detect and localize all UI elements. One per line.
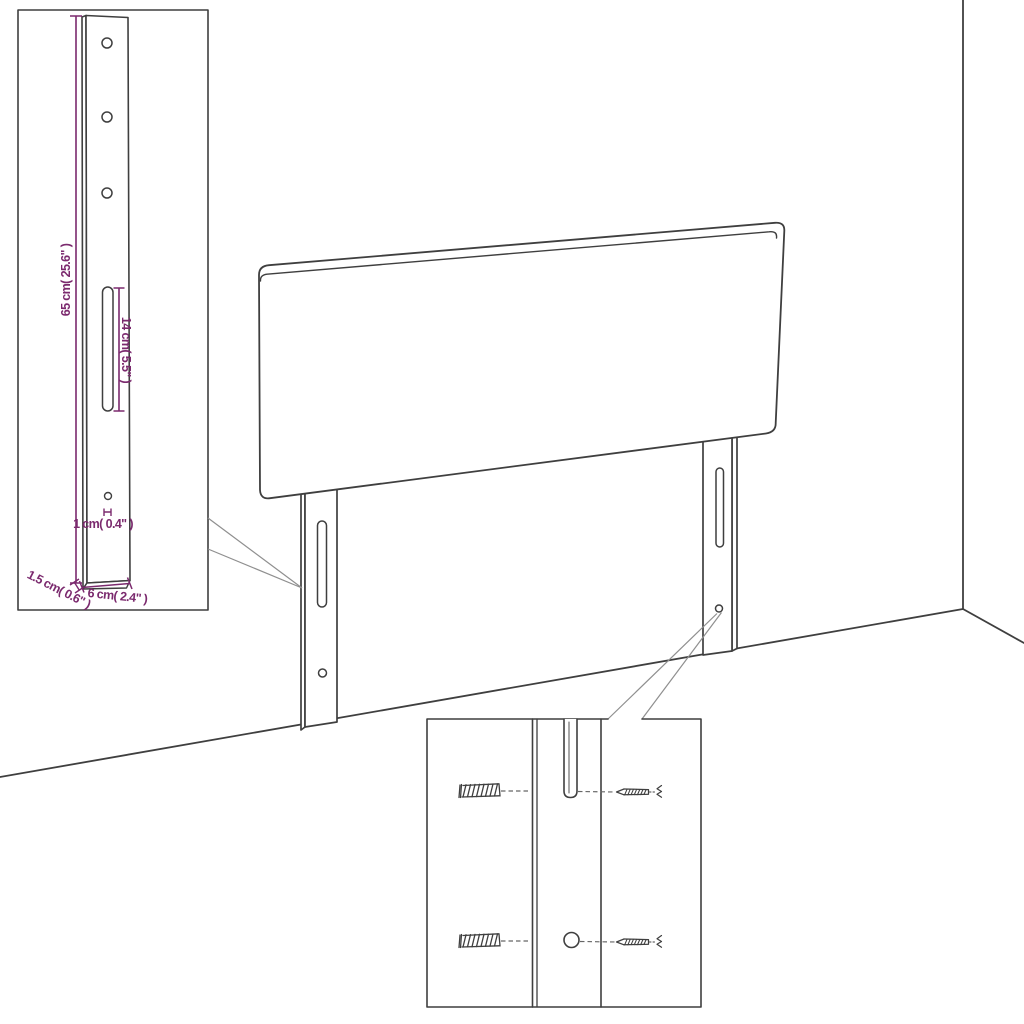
wall-plug-bottom-icon bbox=[459, 934, 500, 948]
hardware-inset bbox=[427, 719, 701, 1007]
bracket-hole-1 bbox=[102, 38, 112, 48]
headboard-leg-right bbox=[703, 428, 737, 655]
headboard-assembly-diagram: 65 cm( 25.6" ) 14 cm( 5.5" ) 1 cm( 0.4" … bbox=[0, 0, 1024, 1024]
leg-left-slot bbox=[318, 521, 327, 607]
bar-hole bbox=[564, 933, 579, 948]
bracket-drawing bbox=[82, 16, 130, 590]
wall-plug-top-icon bbox=[459, 784, 500, 798]
diagram-canvas: 65 cm( 25.6" ) 14 cm( 5.5" ) 1 cm( 0.4" … bbox=[0, 0, 1024, 1024]
floor-line-right bbox=[963, 609, 1024, 643]
callout-bracket bbox=[208, 518, 302, 588]
bracket-inset: 65 cm( 25.6" ) 14 cm( 5.5" ) 1 cm( 0.4" … bbox=[18, 10, 208, 612]
dash-screw-bottom bbox=[580, 942, 616, 943]
callout-hardware-line-2 bbox=[642, 613, 722, 720]
floor-line-left bbox=[0, 609, 963, 777]
callout-hardware-line-1 bbox=[608, 614, 717, 720]
leg-right-hole bbox=[716, 605, 723, 612]
hardware-bar bbox=[533, 719, 602, 1007]
dimension-width-label: 6 cm( 2.4" ) bbox=[87, 586, 148, 606]
leg-right-slot bbox=[716, 468, 724, 547]
dimension-slot-label: 14 cm( 5.5" ) bbox=[119, 317, 133, 384]
bracket-hole-3 bbox=[102, 188, 112, 198]
bracket-hole-2 bbox=[102, 112, 112, 122]
bar-slot bbox=[564, 719, 577, 798]
dash-screw-top bbox=[578, 792, 616, 793]
bracket-slot bbox=[103, 287, 114, 411]
dimension-hole-label: 1 cm( 0.4" ) bbox=[73, 517, 133, 531]
leg-left-hole bbox=[319, 669, 327, 677]
dimension-height-label: 65 cm( 25.6" ) bbox=[59, 243, 73, 316]
bracket-small-hole bbox=[105, 493, 112, 500]
screw-top-icon bbox=[617, 786, 662, 798]
screw-bottom-icon bbox=[617, 936, 662, 948]
headboard-leg-left bbox=[301, 479, 337, 730]
callout-bracket-line-1 bbox=[208, 518, 302, 588]
alignment-dashes bbox=[501, 791, 616, 942]
callout-bracket-line-2 bbox=[208, 549, 302, 588]
dimension-height: 65 cm( 25.6" ) bbox=[59, 16, 82, 583]
